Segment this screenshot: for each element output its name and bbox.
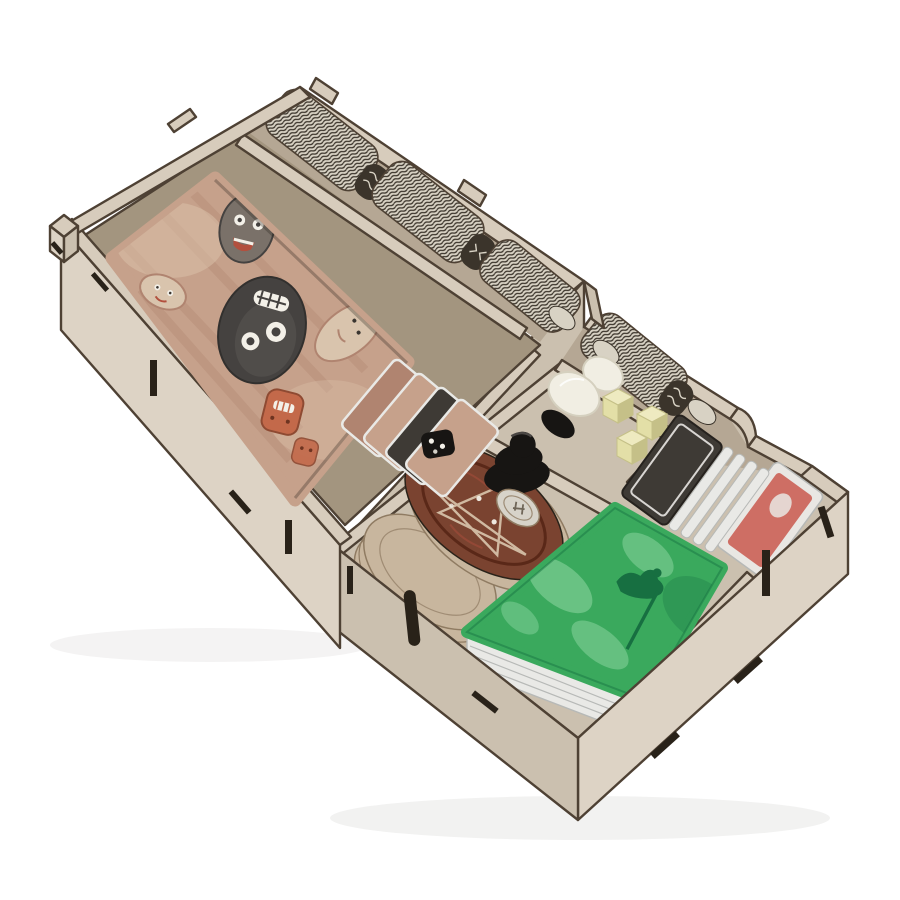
slot xyxy=(285,520,292,554)
box-insert-illustration xyxy=(0,0,900,900)
slot xyxy=(347,566,353,594)
slot xyxy=(762,550,770,596)
cream-cube xyxy=(603,389,633,423)
corner-post xyxy=(50,215,78,262)
slot xyxy=(150,360,157,396)
cream-cube xyxy=(617,430,647,464)
product-photo xyxy=(0,0,900,900)
shadow-left xyxy=(50,628,370,662)
nw-rim-tab xyxy=(168,109,196,132)
